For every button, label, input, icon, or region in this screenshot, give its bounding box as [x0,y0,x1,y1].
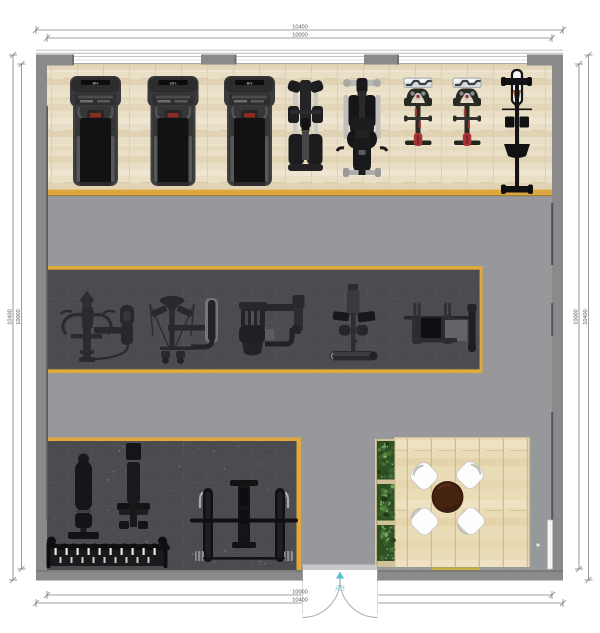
svg-text:10400: 10400 [292,598,308,604]
svg-text:A8: A8 [335,584,345,593]
svg-text:10400: 10400 [583,309,589,325]
svg-text:10000: 10000 [292,590,308,596]
svg-text:10400: 10400 [8,309,14,325]
svg-text:10000: 10000 [16,309,22,325]
svg-text:10000: 10000 [292,33,308,39]
svg-text:10400: 10400 [292,25,308,31]
svg-text:10000: 10000 [574,309,580,325]
